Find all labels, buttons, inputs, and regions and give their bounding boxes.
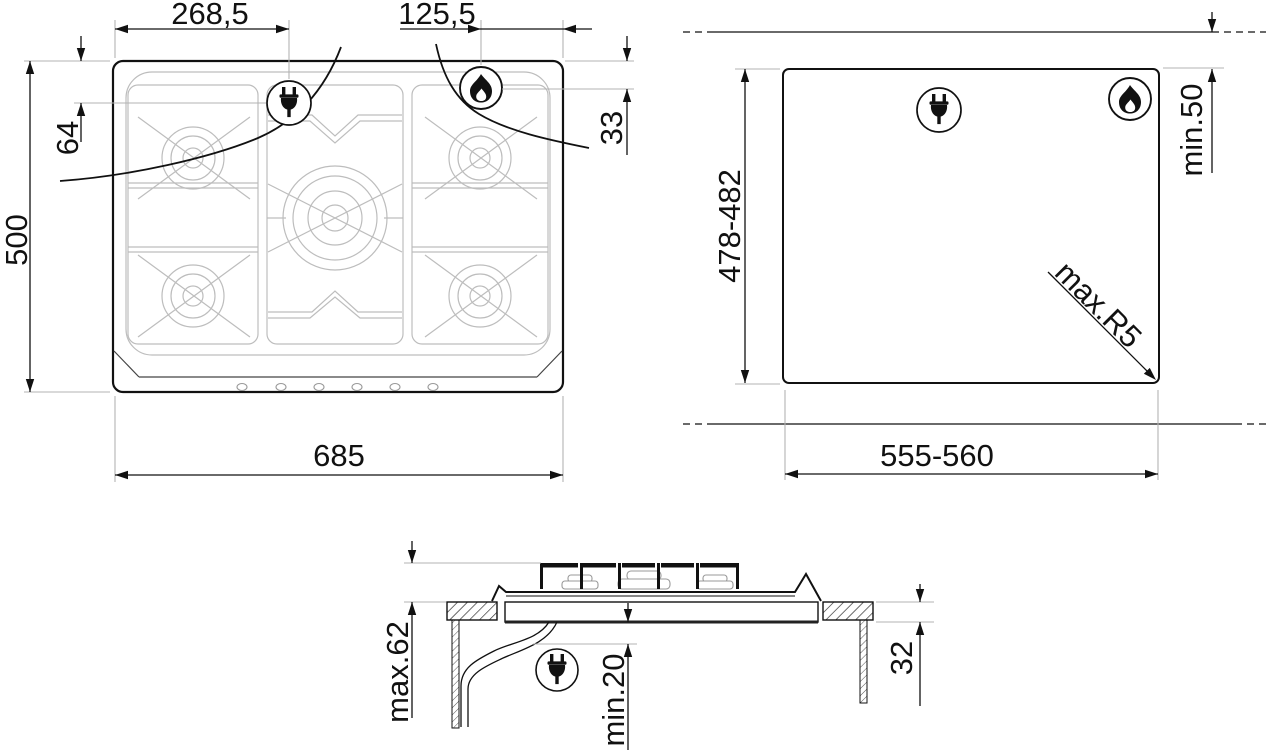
dim-plug-offset-y-label: 64 [50,121,85,155]
dim-hob-width-label: 685 [313,438,365,473]
power-plug-icon [917,88,961,132]
power-plug-icon [536,649,578,691]
dim-plug-offset-x: 268,5 [115,0,289,33]
control-knobs [237,384,438,391]
gas-flame-icon [1109,78,1151,120]
dim-depth-below-worktop-label: 32 [884,641,919,675]
dim-flame-offset-y: 33 [594,36,631,155]
break-curve-right [436,44,589,148]
dim-wall-clearance: min.50 [1174,12,1216,177]
dim-cutout-depth-label: 478-482 [712,169,747,283]
dim-height-above-worktop: max.62 [380,541,416,723]
extension-lines [24,20,634,482]
technical-drawing-page: 268,5 125,5 64 500 33 [0,0,1268,750]
dim-hob-width: 685 [115,438,563,479]
dim-plug-offset-x-label: 268,5 [171,0,249,31]
cooking-surface-grid [126,72,550,355]
dim-cutout-width: 555-560 [785,438,1158,478]
hob-installation-drawing: 268,5 125,5 64 500 33 [0,0,1268,750]
power-plug-icon [267,81,311,125]
burners [162,127,511,327]
side-section-view: max.62 min.20 32 [380,541,934,750]
dim-corner-radius-label: max.R5 [1048,254,1148,354]
dim-cutout-depth: 478-482 [712,69,749,383]
dim-plug-offset-y: 64 [50,36,85,155]
dim-clearance-below: min.20 [596,603,632,750]
dim-cutout-width-label: 555-560 [880,438,994,473]
gas-flame-icon [460,67,502,109]
hob-top-view: 268,5 125,5 64 500 33 [0,0,634,482]
dim-flame-offset-x-label: 125,5 [398,0,476,31]
hob-body-outline [113,61,563,392]
worktop-cutout-view: 478-482 min.50 max.R5 555-560 [683,12,1266,480]
dim-hob-depth: 500 [0,61,34,392]
dim-flame-offset-y-label: 33 [594,111,629,145]
cutout-rectangle [783,69,1159,383]
dim-wall-clearance-label: min.50 [1174,83,1209,176]
burner-caps [562,571,733,589]
extension-lines [735,68,1224,480]
dim-corner-radius: max.R5 [1048,254,1159,383]
dim-hob-depth-label: 500 [0,214,34,266]
front-control-panel [114,351,562,391]
dim-height-above-worktop-label: max.62 [380,621,415,723]
dim-clearance-below-label: min.20 [596,653,631,746]
